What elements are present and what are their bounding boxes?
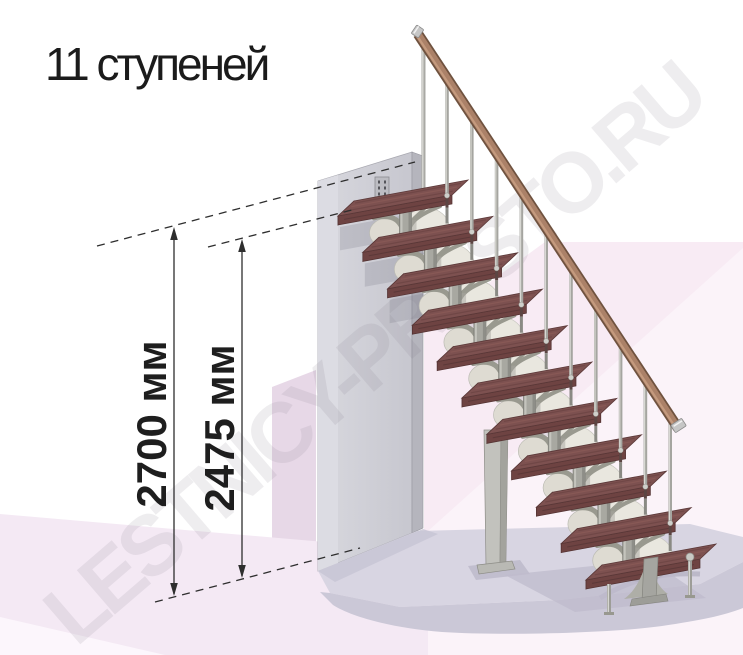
svg-text:2475 мм: 2475 мм: [196, 344, 243, 511]
svg-text:2700 мм: 2700 мм: [128, 340, 175, 507]
svg-text:11 ступеней: 11 ступеней: [45, 38, 268, 90]
